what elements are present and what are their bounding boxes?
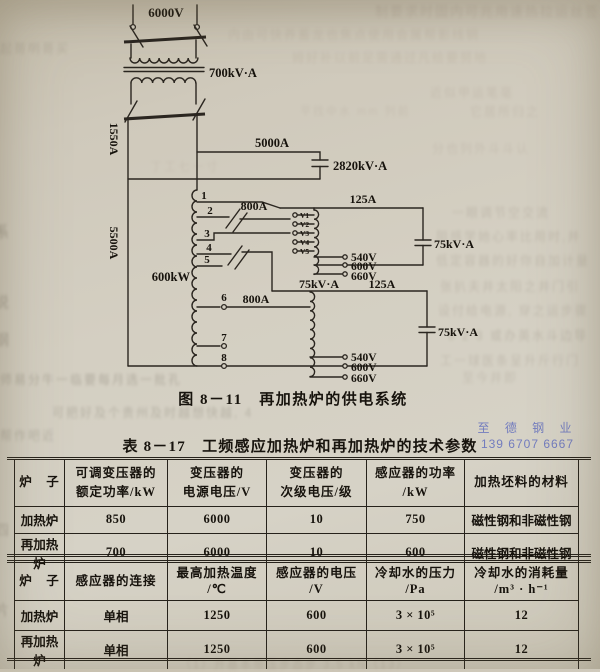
label-800a-top: 800A: [241, 199, 268, 213]
label-2820kva: 2820kV·A: [333, 159, 387, 173]
lower-capacitor-75kva: [419, 291, 435, 366]
winding: [310, 292, 315, 377]
row-label-cell: 加热炉: [15, 600, 65, 630]
header-cell: 冷却水的压力/Pa: [367, 563, 465, 600]
label-tap1: 1: [201, 190, 207, 202]
header-cell: 最高加热温度/℃: [168, 563, 267, 600]
furnace-coil-600kw: [192, 190, 197, 366]
header-cell: 加热坯料的材料: [465, 460, 579, 506]
label-125a-top: 125A: [350, 192, 377, 206]
header-cell: 变压器的电源电压/V: [168, 460, 267, 506]
label-75kva-bottom: 75kV·A: [438, 325, 478, 339]
compensation-capacitor-2820: [128, 152, 328, 179]
table-title: 表 8－17 工频感应加热炉和再加热炉的技术参数: [0, 435, 600, 456]
data-cell: 3 × 10⁵: [367, 630, 465, 669]
header-cell: 变压器的次级电压/级: [267, 460, 367, 506]
switch-blade: [193, 99, 205, 120]
label-tap7: 7: [221, 332, 227, 344]
header-cell: 感应器的功率/kW: [367, 460, 465, 506]
bleed-through-text: 四: [0, 520, 11, 541]
label-tap3: 3: [204, 228, 210, 240]
switch-blade: [130, 26, 143, 47]
label-tap8: 8: [221, 352, 227, 364]
data-cell: 单相: [65, 630, 168, 669]
label-5000a: 5000A: [255, 136, 289, 150]
header-cell: 可调变压器的额定功率/kW: [65, 460, 168, 506]
label-tap5: 5: [204, 254, 210, 266]
header-cell: 感应器的电压/V: [267, 563, 367, 600]
label-v5: V5: [300, 247, 309, 256]
data-cell: 6000: [168, 506, 267, 533]
secondary-winding: [131, 78, 196, 83]
busbar: [124, 114, 205, 119]
data-cell: 10: [267, 506, 367, 533]
busbar: [124, 37, 206, 42]
data-cell: 750: [367, 506, 465, 533]
parameters-table-lower: 炉 子 感应器的连接 最高加热温度/℃ 感应器的电压/V 冷却水的压力/Pa 冷…: [14, 563, 579, 669]
parameters-table-upper: 炉 子 可调变压器的额定功率/kW 变压器的电源电压/V 变压器的次级电压/级 …: [14, 460, 579, 572]
row-label-cell: 加热炉: [15, 506, 65, 533]
header-cell: 冷却水的消耗量/m³ · h⁻¹: [465, 563, 579, 600]
data-cell: 1250: [168, 600, 267, 630]
figure-caption: 图 8－11 再加热炉的供电系统: [0, 388, 586, 409]
label-5500a: 5500A: [107, 227, 121, 260]
data-cell: 12: [465, 600, 579, 630]
header-cell: 炉 子: [15, 460, 65, 506]
main-transformer: [124, 58, 204, 104]
label-v2: V2: [300, 220, 309, 229]
label-6000v: 6000V: [148, 5, 184, 20]
label-660v-bottom: 660V: [351, 373, 377, 385]
header-cell: 感应器的连接: [65, 563, 168, 600]
label-v4: V4: [300, 238, 309, 247]
header-cell: 炉 子: [15, 563, 65, 600]
row-label-cell: 再加热炉: [15, 630, 65, 669]
label-1550a: 1550A: [107, 123, 121, 156]
label-600kw: 600kW: [152, 270, 191, 284]
primary-winding: [130, 58, 198, 63]
label-tap2: 2: [207, 205, 213, 217]
data-cell: 600: [267, 630, 367, 669]
circuit-diagram: 6000V 700kV·A 1550A 5500A 5000A 2820kV·A…: [0, 0, 600, 412]
label-tap6: 6: [221, 292, 227, 304]
data-cell: 单相: [65, 600, 168, 630]
scanned-page: { "figure": { "caption": "图 8－11 再加热炉的供电…: [0, 0, 600, 669]
label-800a-bottom: 800A: [243, 292, 270, 306]
label-tap4: 4: [206, 242, 212, 254]
label-700kva: 700kV·A: [209, 66, 257, 80]
data-cell: 850: [65, 506, 168, 533]
bleed-through-text: 片: [0, 600, 11, 621]
data-cell: 12: [465, 630, 579, 669]
label-75kva-mid: 75kV·A: [299, 277, 339, 291]
label-v3: V3: [300, 229, 309, 238]
label-125a-mid: 125A: [369, 277, 396, 291]
label-75kva-top: 75kV·A: [434, 237, 474, 251]
upper-capacitor-75kva: [415, 208, 431, 265]
data-cell: 3 × 10⁵: [367, 600, 465, 630]
label-v1: V1: [300, 211, 309, 220]
data-cell: 600: [267, 600, 367, 630]
data-cell: 1250: [168, 630, 267, 669]
secondary-switch: [124, 99, 205, 122]
data-cell: 磁性钢和非磁性钢: [465, 506, 579, 533]
watermark-company: 至 德 钢 业: [470, 419, 585, 436]
